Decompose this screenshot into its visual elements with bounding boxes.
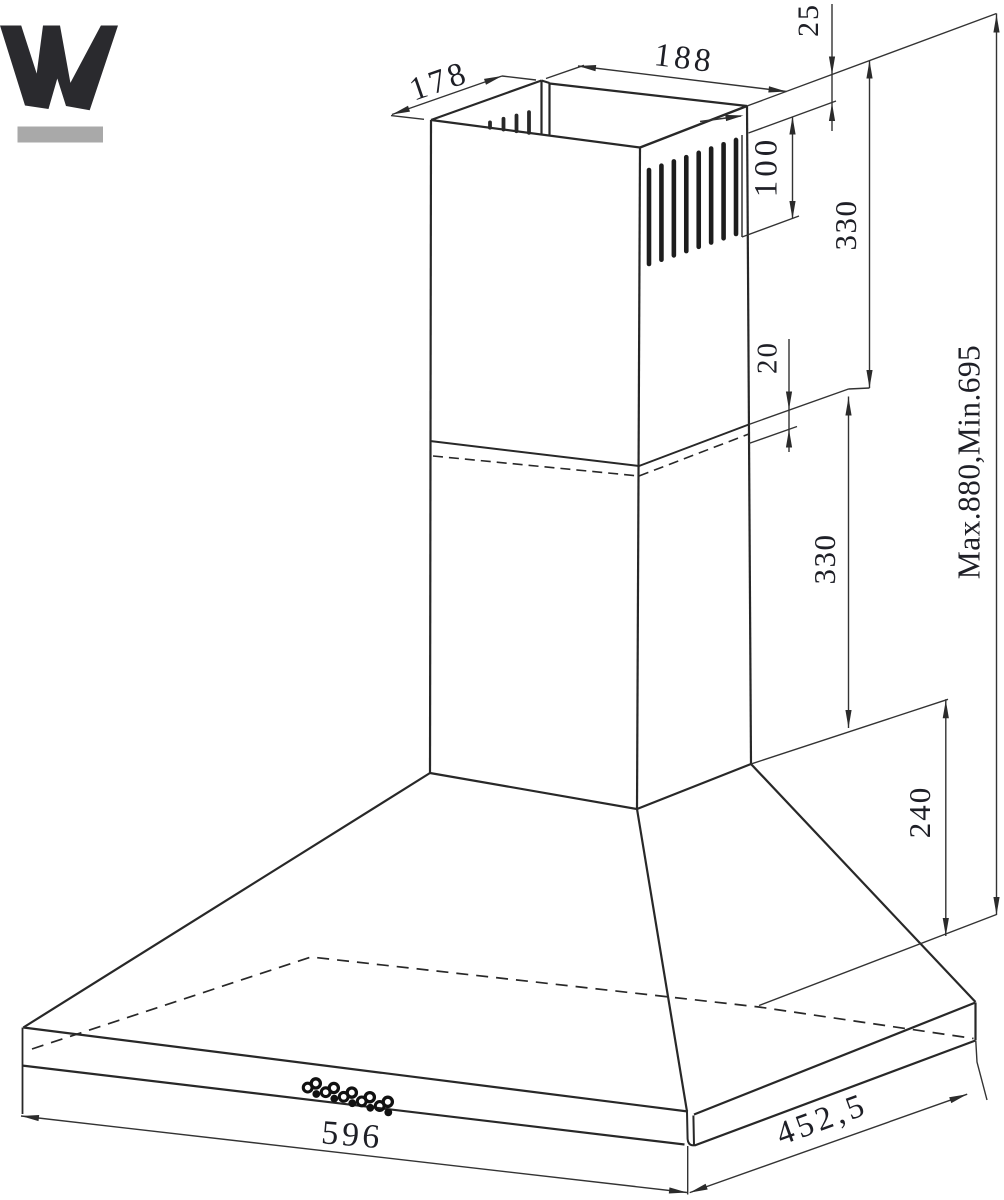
svg-text:188: 188 <box>652 37 716 80</box>
svg-text:178: 178 <box>405 55 473 109</box>
svg-text:330: 330 <box>828 200 863 251</box>
svg-text:20: 20 <box>752 341 784 374</box>
svg-text:100: 100 <box>749 136 785 198</box>
svg-text:596: 596 <box>320 1114 384 1156</box>
svg-text:240: 240 <box>902 786 937 839</box>
svg-text:25: 25 <box>792 3 825 37</box>
svg-text:330: 330 <box>807 534 842 585</box>
svg-text:452,5: 452,5 <box>772 1087 873 1153</box>
svg-text:Max.880,Min.695: Max.880,Min.695 <box>952 345 987 579</box>
